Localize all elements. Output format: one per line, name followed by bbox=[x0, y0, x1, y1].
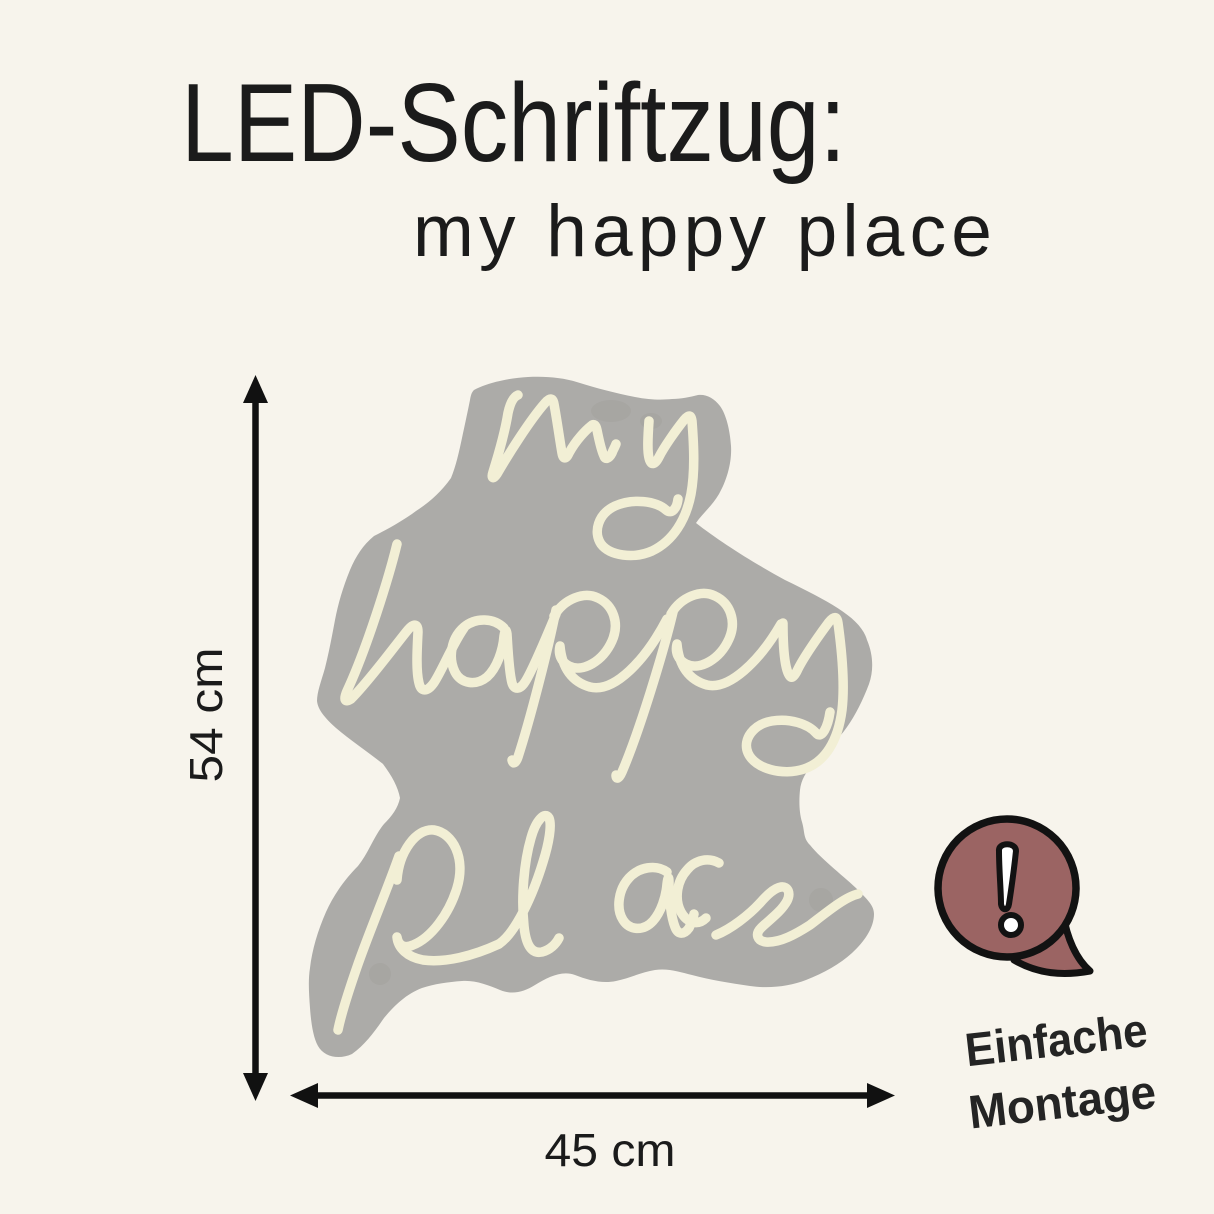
svg-text:Einfache: Einfache bbox=[962, 1003, 1150, 1076]
svg-text:45 cm: 45 cm bbox=[545, 1124, 676, 1176]
svg-text:Montage: Montage bbox=[966, 1065, 1159, 1139]
svg-text:my happy place: my happy place bbox=[413, 191, 997, 272]
svg-text:LED-Schriftzug:: LED-Schriftzug: bbox=[181, 61, 846, 185]
svg-text:54 cm: 54 cm bbox=[180, 648, 232, 783]
